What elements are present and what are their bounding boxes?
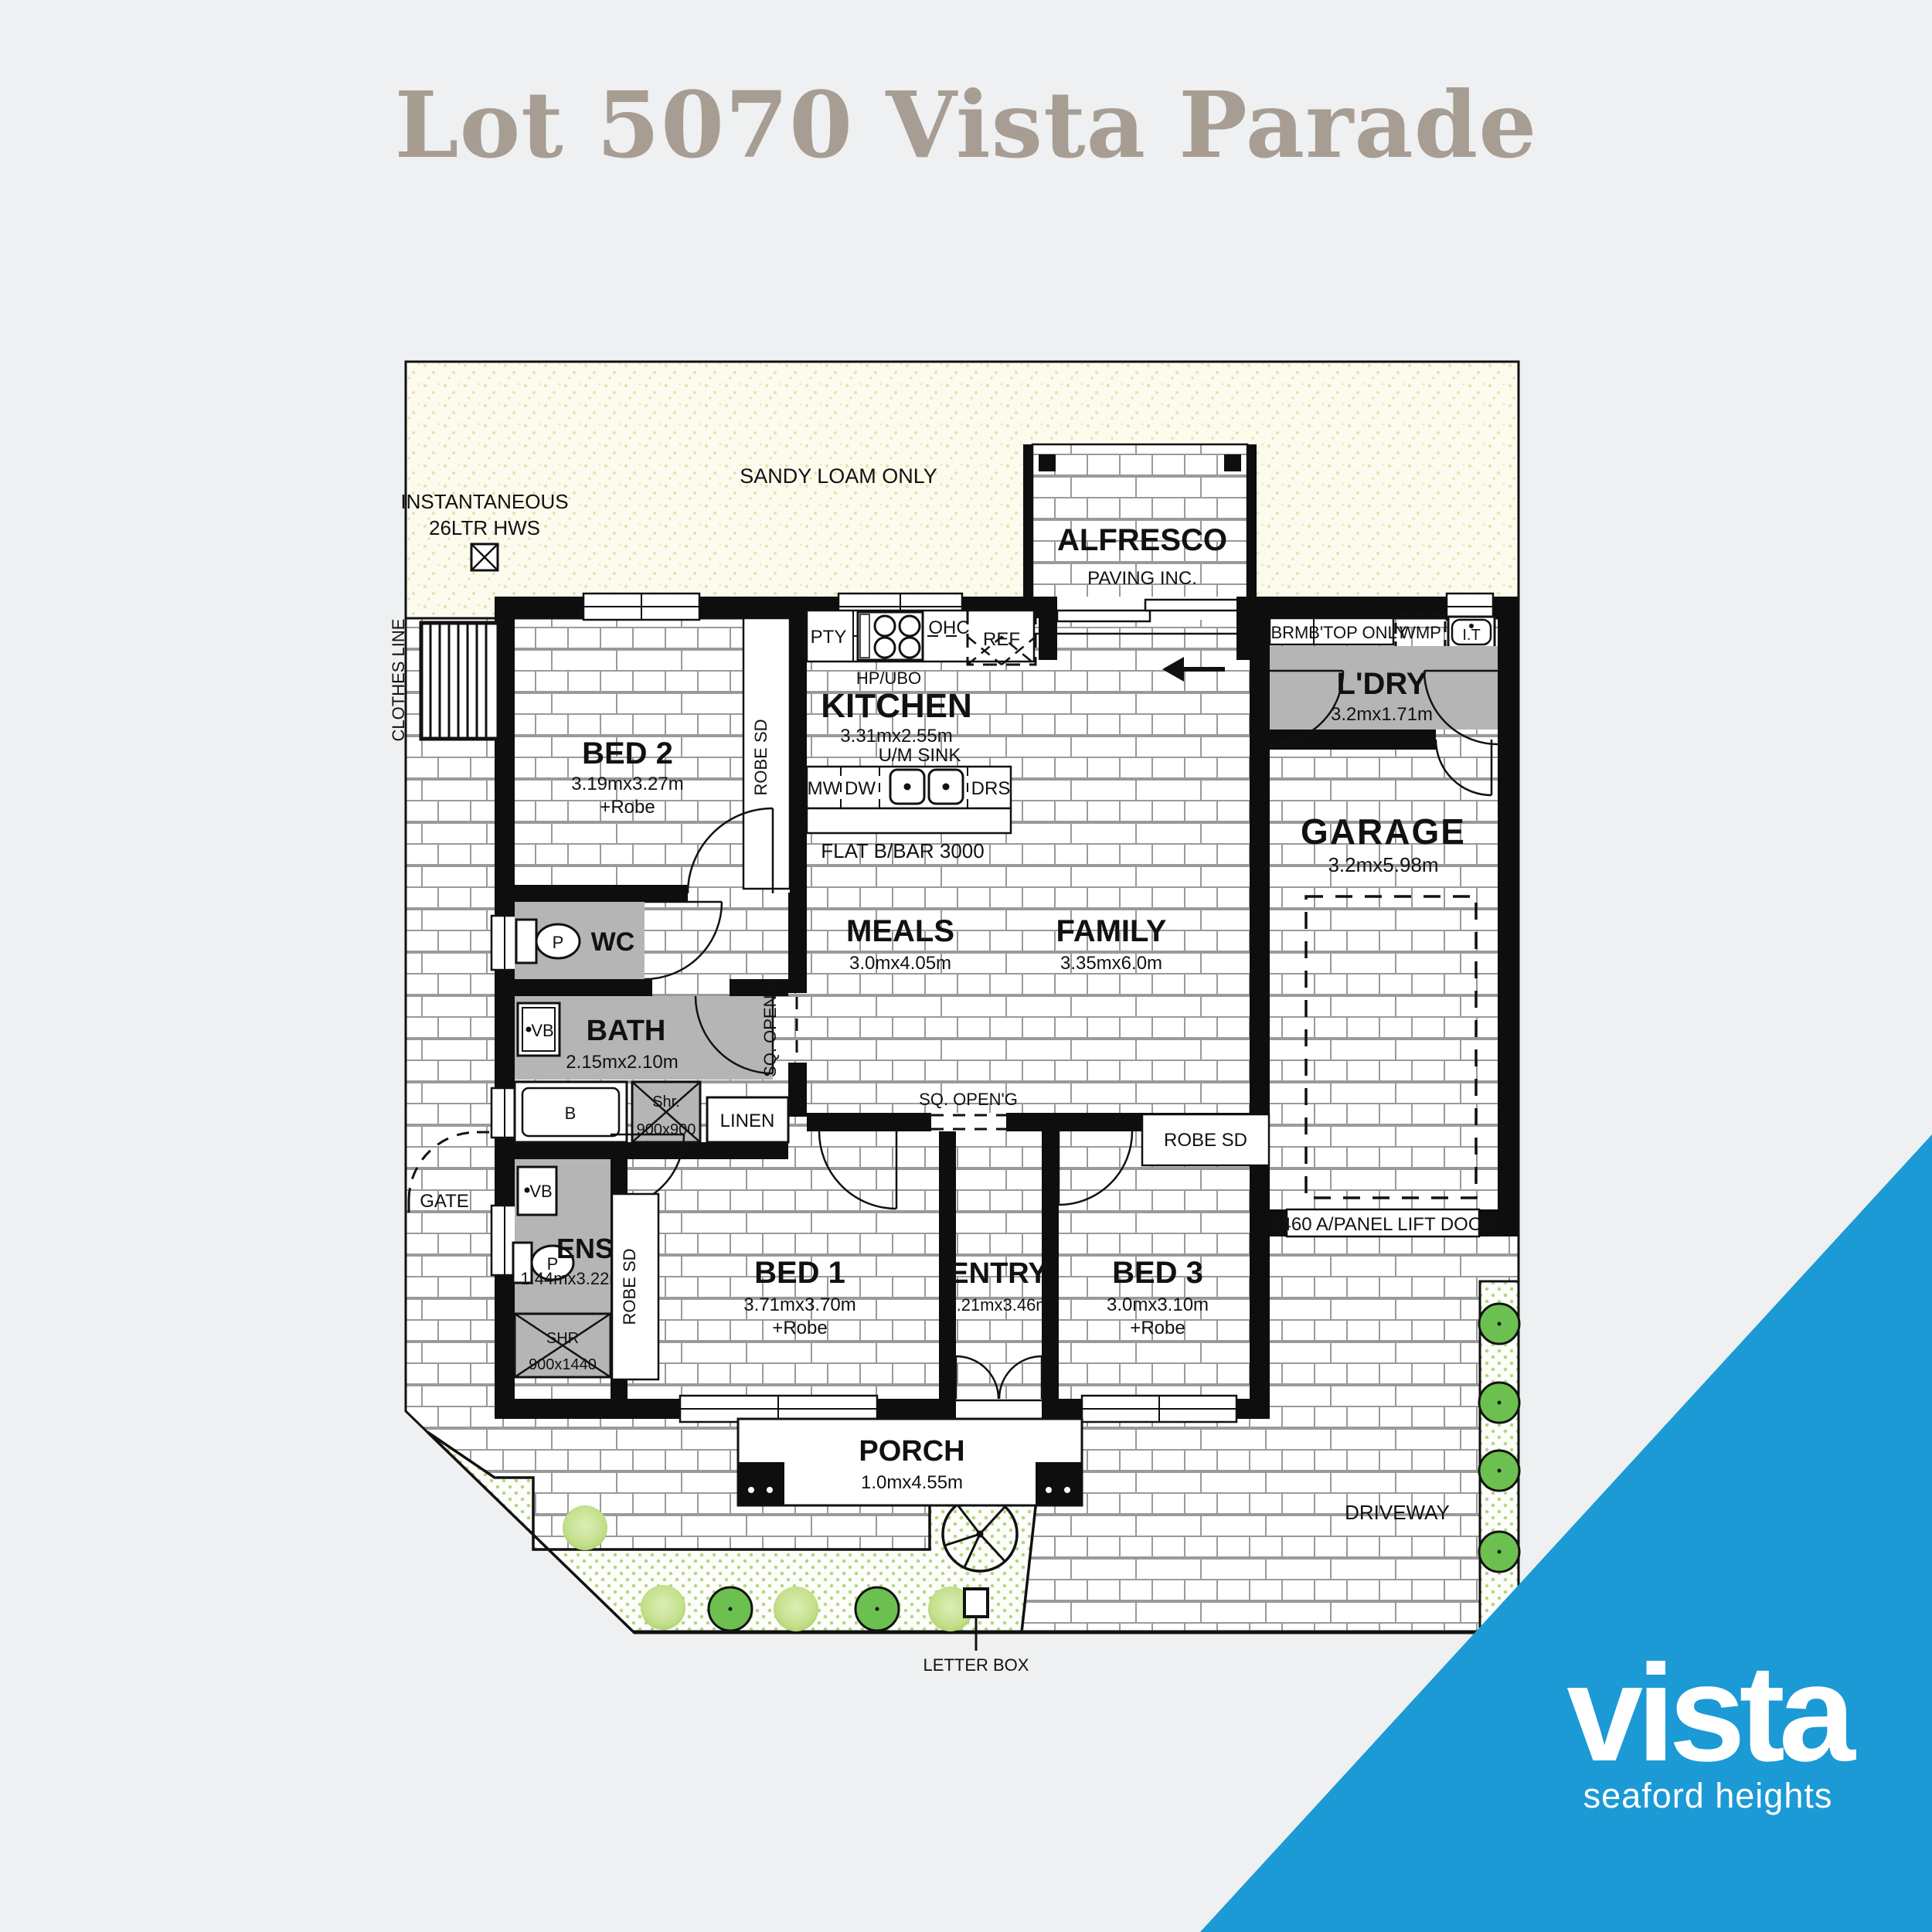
pantry-label: PTY (811, 627, 847, 648)
garage-dims: 3.2mx5.98m (1328, 853, 1438, 876)
floor-plan-page: Lot 5070 Vista Parade (0, 0, 1932, 1932)
hws-label-1: INSTANTANEOUS (400, 490, 568, 513)
laundry-trough-icon: I.T (1448, 617, 1495, 648)
sq-opening-label: SQ. OPEN'G (919, 1090, 1018, 1109)
wc-label: WC (591, 927, 635, 957)
vanity-icon: VB (518, 1003, 560, 1056)
svg-text:Shr.: Shr. (652, 1094, 680, 1111)
gate-label: GATE (420, 1191, 469, 1212)
kitchen-sink-note: U/M SINK (879, 745, 961, 766)
porch-label: PORCH (859, 1435, 964, 1468)
shower-icon: Shr. 900x900 (632, 1082, 700, 1142)
tree-light (774, 1587, 818, 1631)
svg-text:ROBE SD: ROBE SD (1164, 1130, 1247, 1151)
kitchen-label: KITCHEN (821, 687, 972, 725)
window-bed2 (583, 594, 699, 620)
kitchen-dims: 3.31mx2.55m (840, 726, 952, 747)
bed1-label: BED 1 (754, 1256, 845, 1290)
laundry-bench: BRM. B'TOP ONLY WMP I.T (1270, 615, 1495, 649)
svg-text:VB: VB (529, 1182, 552, 1201)
window-wc (492, 916, 518, 970)
laundry-dims: 3.2mx1.71m (1331, 704, 1433, 725)
letter-box-label: LETTER BOX (923, 1655, 1029, 1675)
alfresco-post (1224, 454, 1241, 471)
alfresco-post (1039, 454, 1056, 471)
bed3-robe: ROBE SD (1142, 1114, 1269, 1165)
svg-text:ROBE SD: ROBE SD (620, 1248, 639, 1325)
bed3-extra: +Robe (1130, 1318, 1185, 1338)
ens-label: ENS (556, 1233, 614, 1264)
driveway-label: DRIVEWAY (1345, 1501, 1450, 1524)
ens-shower-icon: SHR 900x1440 (515, 1314, 611, 1377)
svg-text:VB: VB (531, 1021, 553, 1040)
ens-dims: 1.44mx3.22m (520, 1269, 623, 1288)
cooktop-icon (858, 612, 923, 660)
island-bench: MW DW DRS (807, 767, 1011, 833)
bed3-dims: 3.0mx3.10m (1107, 1294, 1209, 1315)
svg-text:900x900: 900x900 (637, 1121, 696, 1138)
fridge-label: REF (983, 629, 1020, 650)
bed2-label: BED 2 (582, 736, 673, 770)
porch-post (738, 1462, 784, 1505)
porch-post (1036, 1462, 1082, 1505)
entry-dims: 1.21mx3.46m (947, 1295, 1049, 1315)
svg-text:P: P (553, 933, 564, 952)
garage-lift-door: 2460 A/PANEL LIFT DOOR (1250, 1209, 1518, 1236)
room-bath: VB BATH 2.15mx2.10m B Shr. 900x900 (515, 978, 797, 1142)
sandy-loam-area: SANDY LOAM ONLY (406, 362, 1519, 618)
bed2-dims: 3.19mx3.27m (571, 774, 683, 794)
ohc-label: OHC (928, 617, 969, 638)
breakfast-bar-label: FLAT B/BAR 3000 (821, 839, 984, 862)
meals-dims: 3.0mx4.05m (849, 953, 951, 974)
tree-light (563, 1505, 607, 1550)
hws-label-2: 26LTR HWS (429, 516, 540, 539)
bed1-extra: +Robe (772, 1318, 827, 1338)
svg-text:LINEN: LINEN (720, 1111, 775, 1131)
garage-label: GARAGE (1301, 811, 1466, 852)
family-label: FAMILY (1056, 914, 1167, 948)
vanity-icon: VB (518, 1167, 556, 1215)
clothes-line-label: CLOTHES LINE (389, 619, 408, 742)
hws-icon (471, 544, 498, 570)
laundry-label: L'DRY (1337, 667, 1427, 701)
feature-tree (943, 1497, 1017, 1571)
svg-text:SHR: SHR (546, 1330, 579, 1347)
alfresco-label: ALFRESCO (1057, 523, 1227, 557)
vista-logo: vista seaford heights (1526, 1645, 1889, 1816)
broom-label: BRM. (1271, 623, 1314, 642)
bed1-robe: ROBE SD (612, 1194, 658, 1379)
svg-text:I.T: I.T (1462, 627, 1480, 644)
tree-light (641, 1585, 685, 1630)
bath-label: BATH (587, 1015, 666, 1047)
linen-cupboard: LINEN (707, 1097, 788, 1142)
toilet-icon: P (516, 920, 580, 963)
svg-text:WMP: WMP (1400, 623, 1441, 642)
room-porch: PORCH 1.0mx4.55m (738, 1419, 1082, 1505)
svg-text:B: B (565, 1104, 577, 1123)
bed1-dims: 3.71mx3.70m (743, 1294, 855, 1315)
svg-text:900x1440: 900x1440 (529, 1356, 597, 1373)
microwave-label: MW (808, 778, 841, 799)
meals-label: MEALS (846, 914, 954, 948)
vista-logo-brand: vista (1526, 1645, 1889, 1782)
bathtub-icon: B (515, 1082, 627, 1142)
window-bed3 (1082, 1396, 1236, 1422)
bed2-robe-label: ROBE SD (751, 719, 770, 795)
sq-opening-vert-label: SQ. OPEN'G (760, 978, 780, 1077)
bed2-extra: +Robe (600, 797, 655, 818)
benchtop-label: B'TOP ONLY (1308, 623, 1407, 642)
porch-dims: 1.0mx4.55m (861, 1472, 963, 1493)
sandy-loam-label: SANDY LOAM ONLY (740, 464, 937, 488)
hotplate-label: HP/UBO (856, 668, 921, 688)
entry-label: ENTRY (949, 1257, 1047, 1290)
bed3-label: BED 3 (1112, 1256, 1203, 1290)
drawers-label: DRS (971, 778, 1011, 799)
clothes-line: CLOTHES LINE (389, 619, 498, 742)
family-dims: 3.35mx6.0m (1060, 953, 1162, 974)
dishwasher-label: DW (845, 778, 876, 799)
alfresco-note: PAVING INC. (1087, 568, 1197, 589)
bath-dims: 2.15mx2.10m (566, 1052, 678, 1073)
room-laundry: L'DRY 3.2mx1.71m (1270, 646, 1498, 744)
lift-door-label: 2460 A/PANEL LIFT DOOR (1270, 1214, 1496, 1235)
